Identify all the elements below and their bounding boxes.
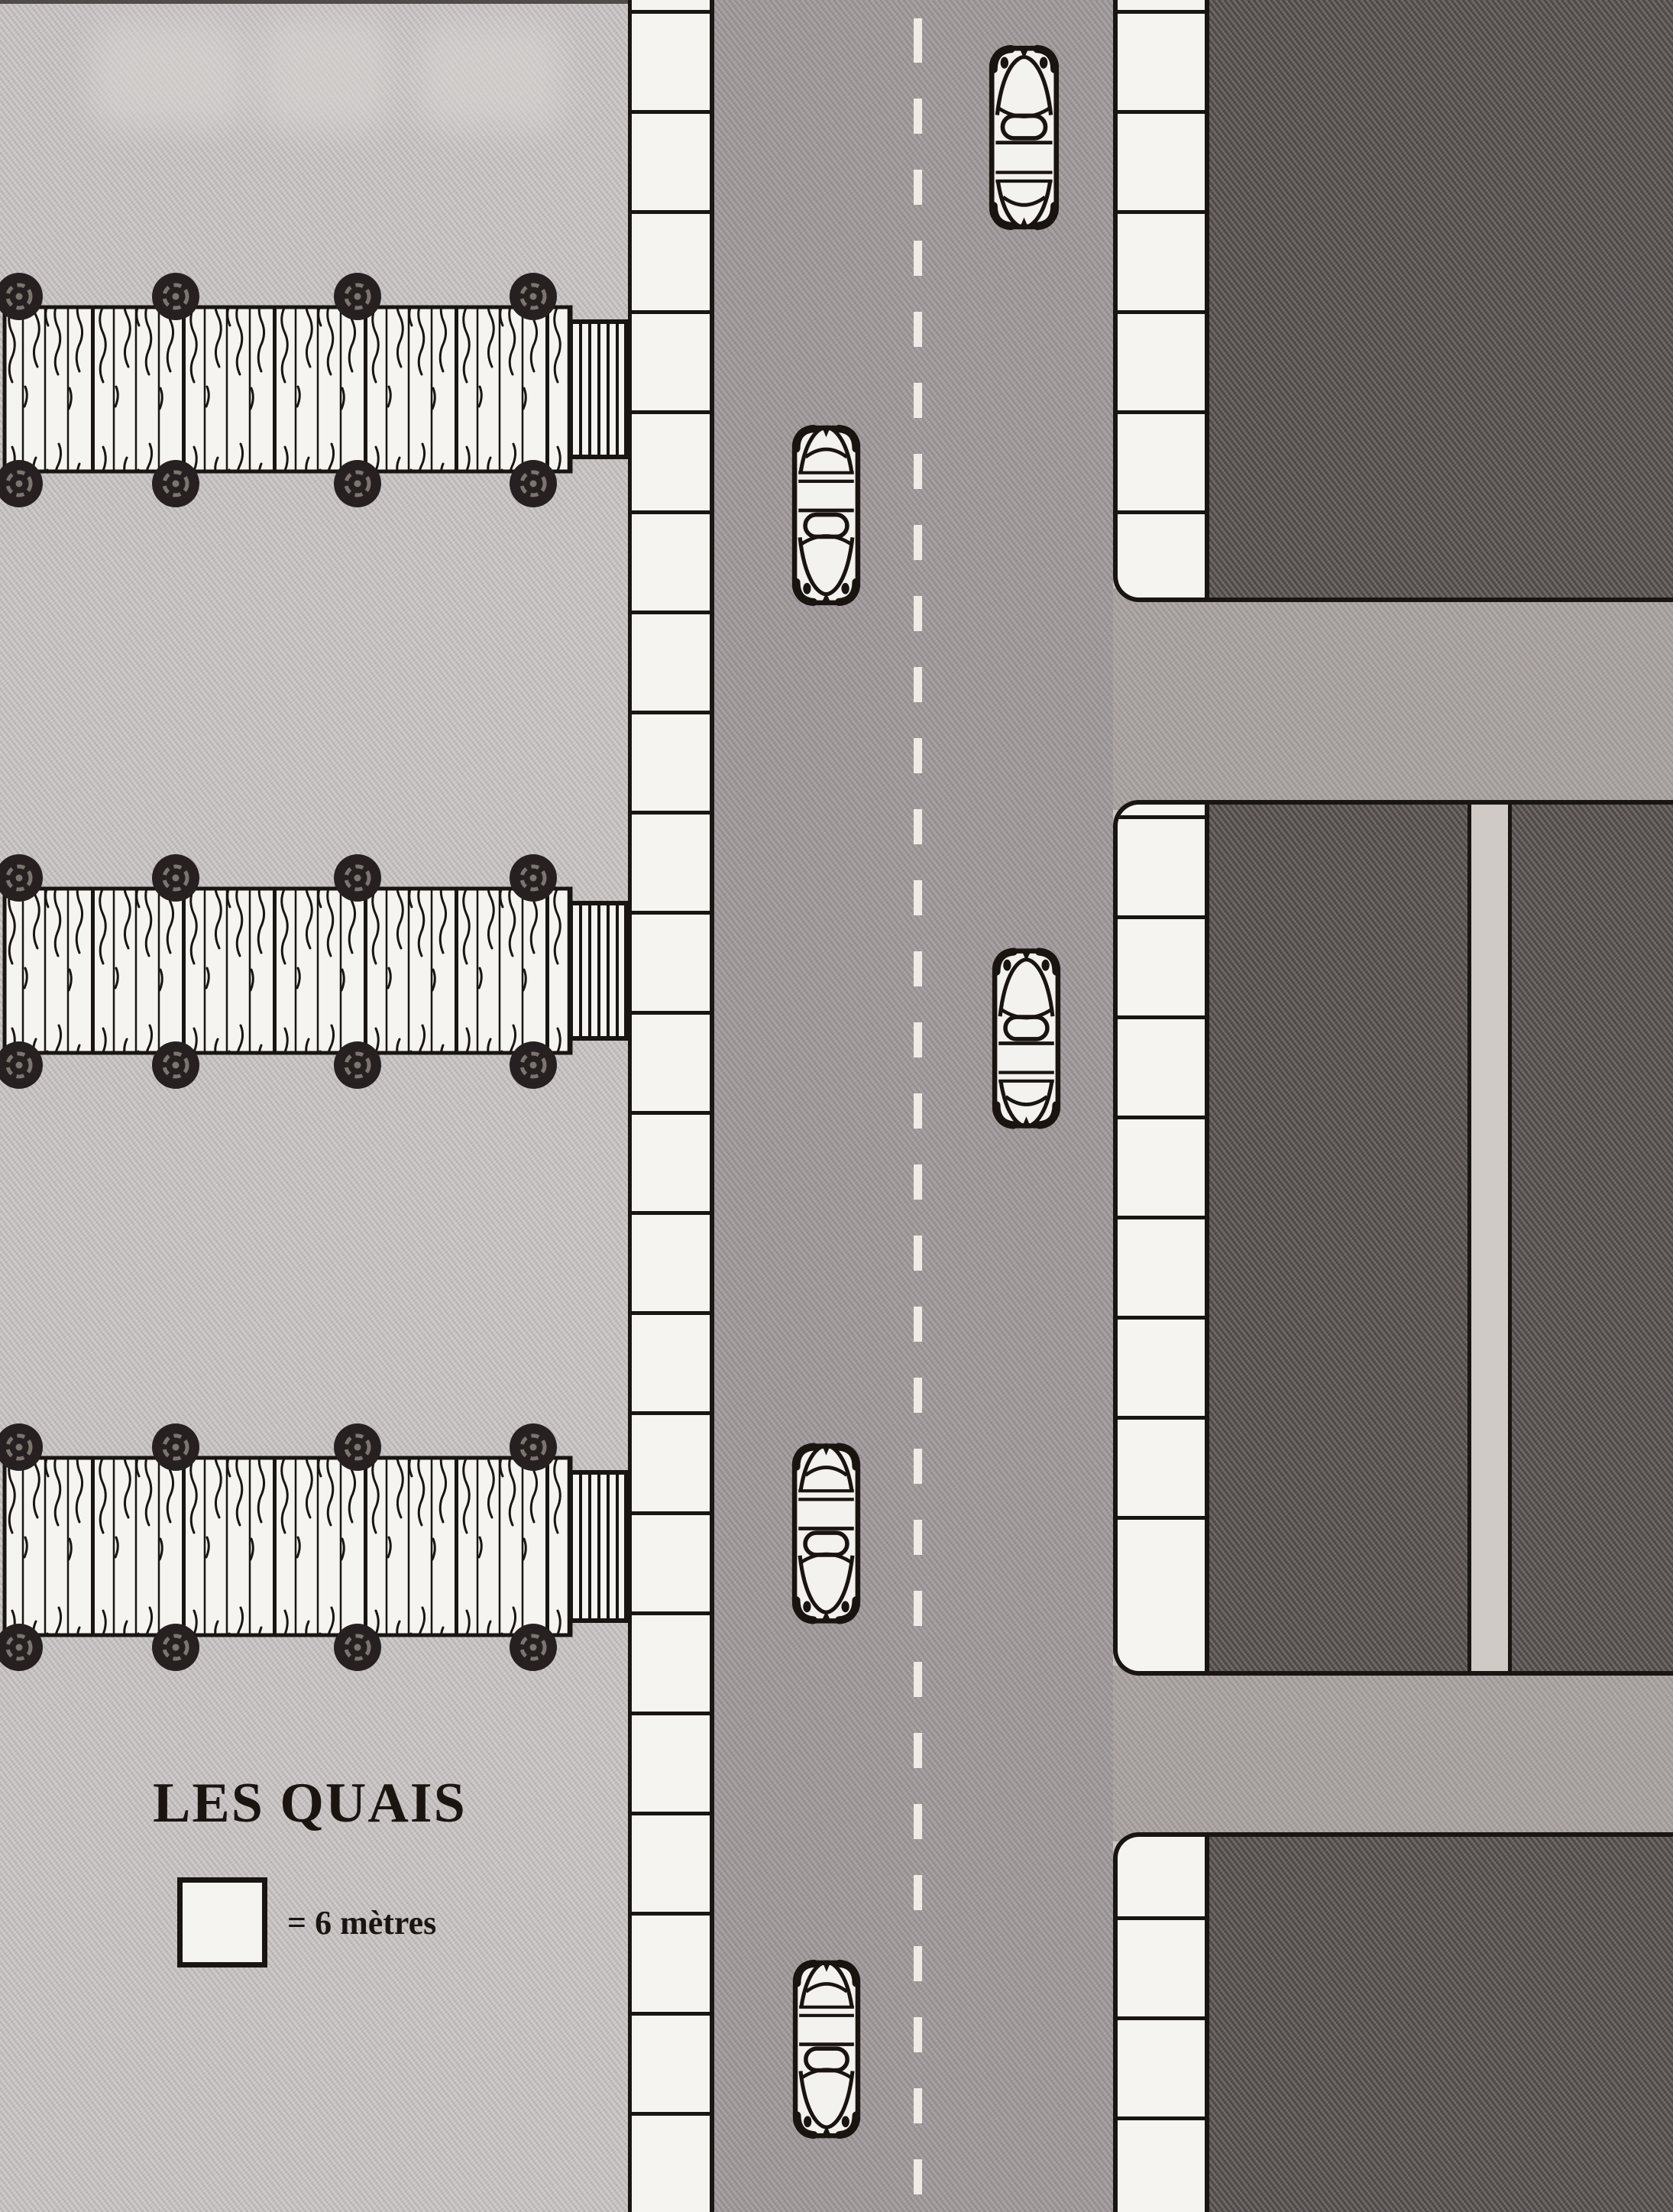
bleedthrough-blob [260,17,390,131]
scan-edge-artifact [0,0,691,4]
mooring-bollard-icon [510,1423,557,1471]
pier-1 [0,272,631,520]
east-sidewalk [1118,805,1209,1671]
northbound-car [988,42,1060,233]
mooring-bollard-icon [510,460,557,507]
mooring-bollard-icon [334,1041,381,1089]
bleedthrough-blob [416,23,561,130]
southbound-car [791,1953,862,2146]
pier-planks [5,1458,571,1635]
pier-2 [0,853,631,1102]
legend-scale-text: = 6 mètres [287,1903,436,1942]
mooring-bollard-icon [334,1624,381,1671]
bleedthrough-blob [92,21,244,128]
legend-scale-square [177,1877,267,1967]
map-title: LES QUAIS [153,1771,550,1836]
mooring-bollard-icon [152,460,199,507]
mooring-bollard-icon [510,273,557,320]
side-street-south [1113,1666,1673,1841]
map-canvas: LES QUAIS = 6 mètres [0,0,1673,2212]
mooring-bollard-icon [334,1423,381,1471]
mooring-bollard-icon [152,1041,199,1089]
mooring-bollard-icon [152,854,199,902]
mooring-bollard-icon [510,1041,557,1089]
east-sidewalk [1118,0,1209,598]
mooring-bollard-icon [152,1423,199,1471]
mooring-bollard-icon [152,1624,199,1671]
mooring-bollard-icon [334,460,381,507]
northbound-car [991,944,1062,1133]
building-alley [1468,805,1512,1671]
building-block-north [1113,0,1673,602]
pier-planks [5,307,571,471]
building-block-south [1113,1832,1673,2212]
mooring-bollard-icon [510,854,557,902]
side-street-north [1113,588,1673,810]
southbound-car [791,422,862,609]
road-center-dashed-line [914,0,922,2212]
mooring-bollard-icon [334,854,381,902]
east-sidewalk [1118,1837,1209,2212]
mooring-bollard-icon [152,273,199,320]
west-sidewalk [628,0,714,2212]
mooring-bollard-icon [510,1624,557,1671]
pier-planks [5,889,571,1053]
southbound-car [791,1438,862,1629]
map-scale-legend: = 6 mètres [177,1877,436,1967]
building-block-middle [1113,800,1673,1676]
mooring-bollard-icon [334,273,381,320]
pier-3 [0,1423,631,1684]
